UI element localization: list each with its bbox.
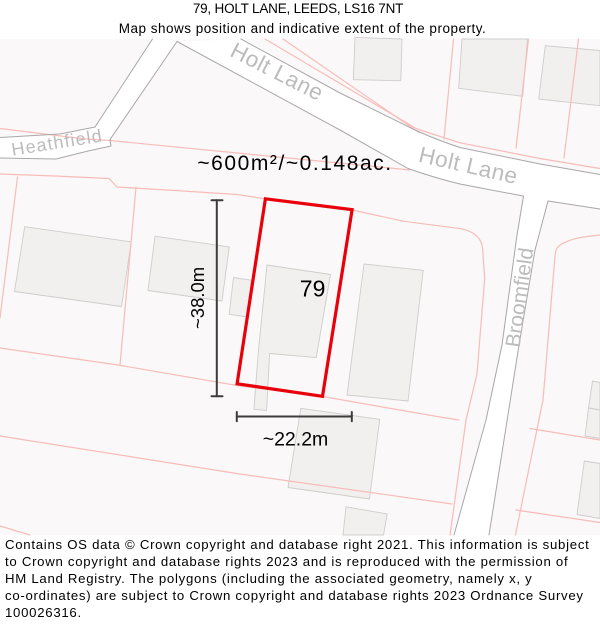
svg-text:79: 79 bbox=[300, 275, 326, 301]
svg-text:~600m²/~0.148ac.: ~600m²/~0.148ac. bbox=[197, 152, 392, 175]
svg-text:~38.0m: ~38.0m bbox=[187, 267, 208, 329]
svg-text:~22.2m: ~22.2m bbox=[263, 428, 329, 450]
